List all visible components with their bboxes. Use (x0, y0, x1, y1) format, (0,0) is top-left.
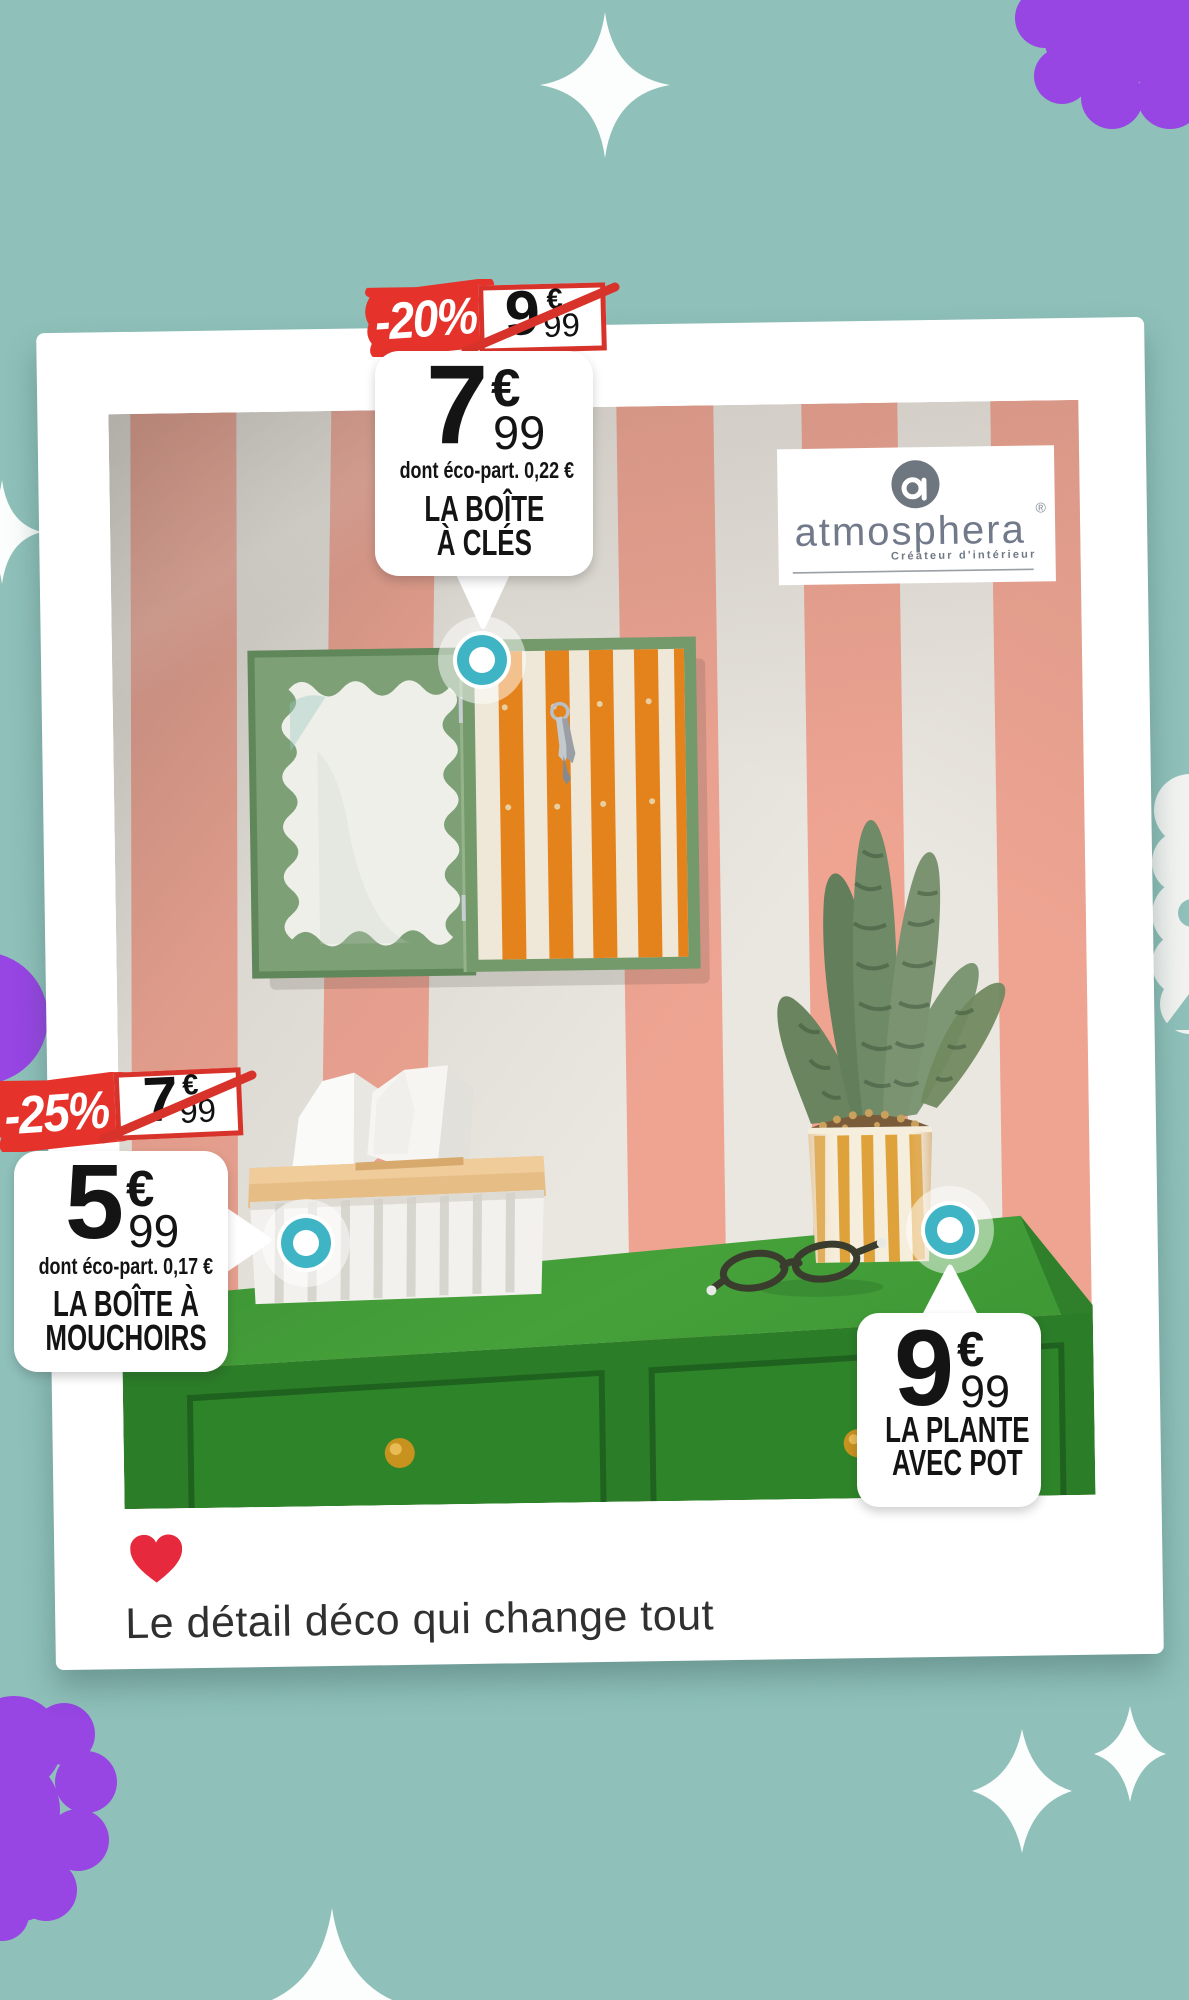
svg-text:®: ® (1035, 499, 1046, 515)
svg-text:atmosphera: atmosphera (794, 508, 1026, 555)
svg-text:Créateur d'intérieur: Créateur d'intérieur (891, 548, 1037, 562)
